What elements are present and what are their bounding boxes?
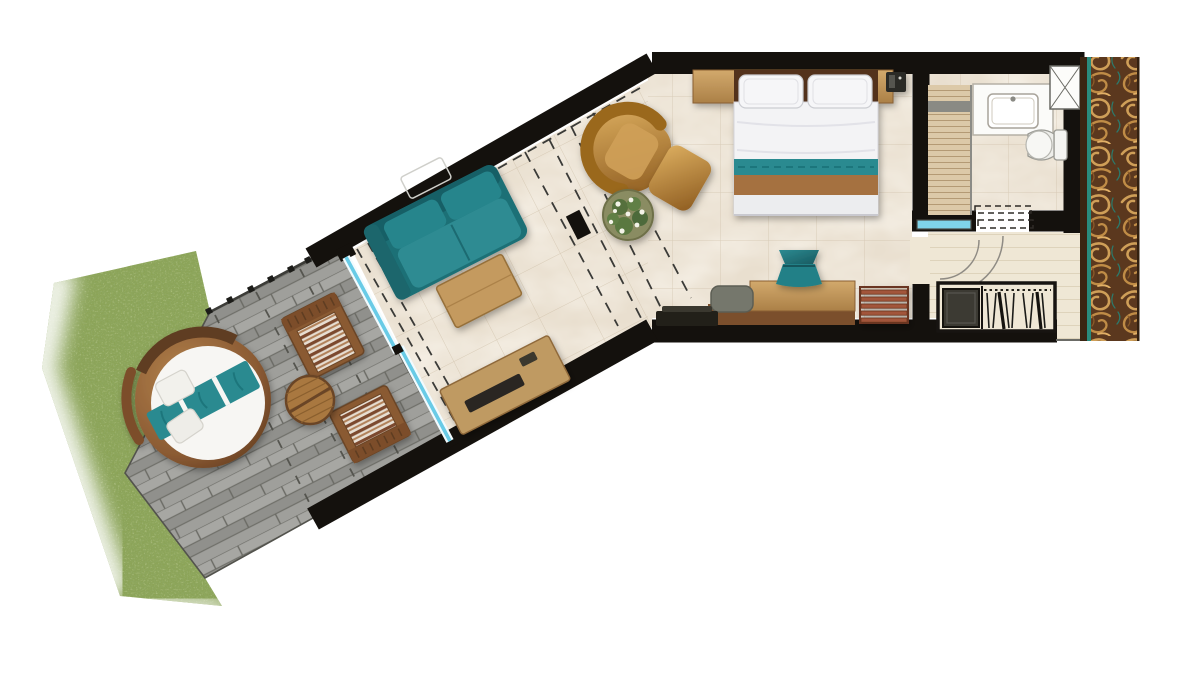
carpet-teal-line (1087, 57, 1091, 341)
shower-shaft (1050, 66, 1080, 109)
safe-minibar (943, 289, 979, 327)
faucet (1010, 96, 1015, 101)
floor-plan-canvas (0, 0, 1200, 675)
desk-chair (711, 286, 753, 312)
pillow (739, 75, 803, 108)
phone-clock (886, 72, 906, 92)
carpet-swirl-pattern (1091, 57, 1139, 341)
pillow (808, 75, 872, 108)
toilet (1026, 130, 1067, 160)
shower-bench (928, 101, 970, 112)
carpet-edge-strip (1080, 57, 1087, 341)
wardrobe (938, 283, 1055, 331)
luggage-rack (860, 287, 908, 323)
corridor-carpet (1080, 57, 1140, 341)
bed-throw (734, 175, 878, 195)
bed-foot-fold (734, 195, 878, 215)
flower-plant (603, 190, 653, 240)
vanity-sink (973, 84, 1053, 135)
floor-plan-svg (0, 0, 1200, 675)
teal-stool (776, 250, 822, 287)
tv-console (656, 306, 718, 326)
entry-glass-panel (917, 220, 971, 229)
